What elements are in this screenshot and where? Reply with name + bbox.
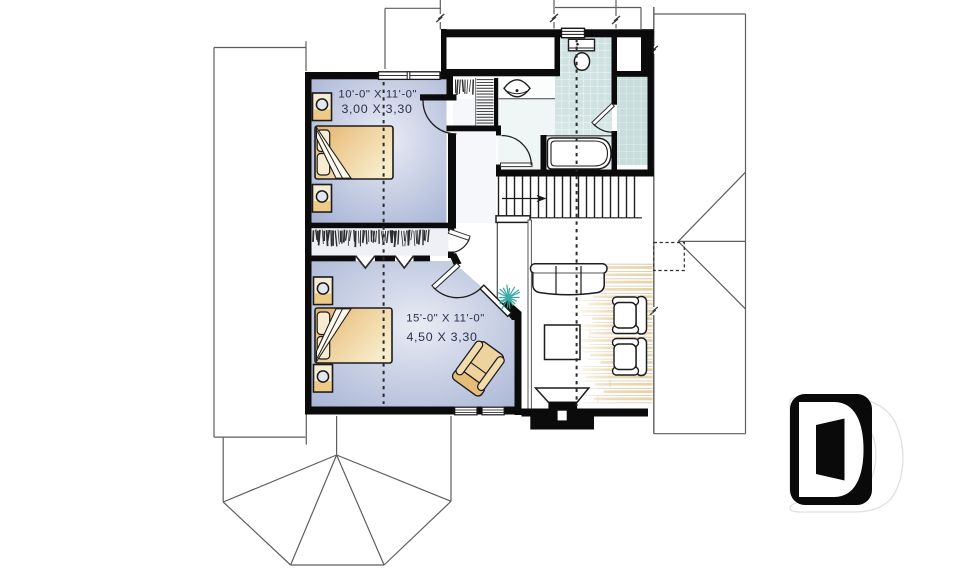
svg-text:15'-0" X 11'-0": 15'-0" X 11'-0"	[406, 313, 485, 325]
svg-text:3,00 X 3,30: 3,00 X 3,30	[341, 102, 412, 116]
svg-text:10'-0" X 11'-0": 10'-0" X 11'-0"	[338, 88, 417, 100]
svg-text:4,50 X 3,30: 4,50 X 3,30	[406, 330, 477, 344]
